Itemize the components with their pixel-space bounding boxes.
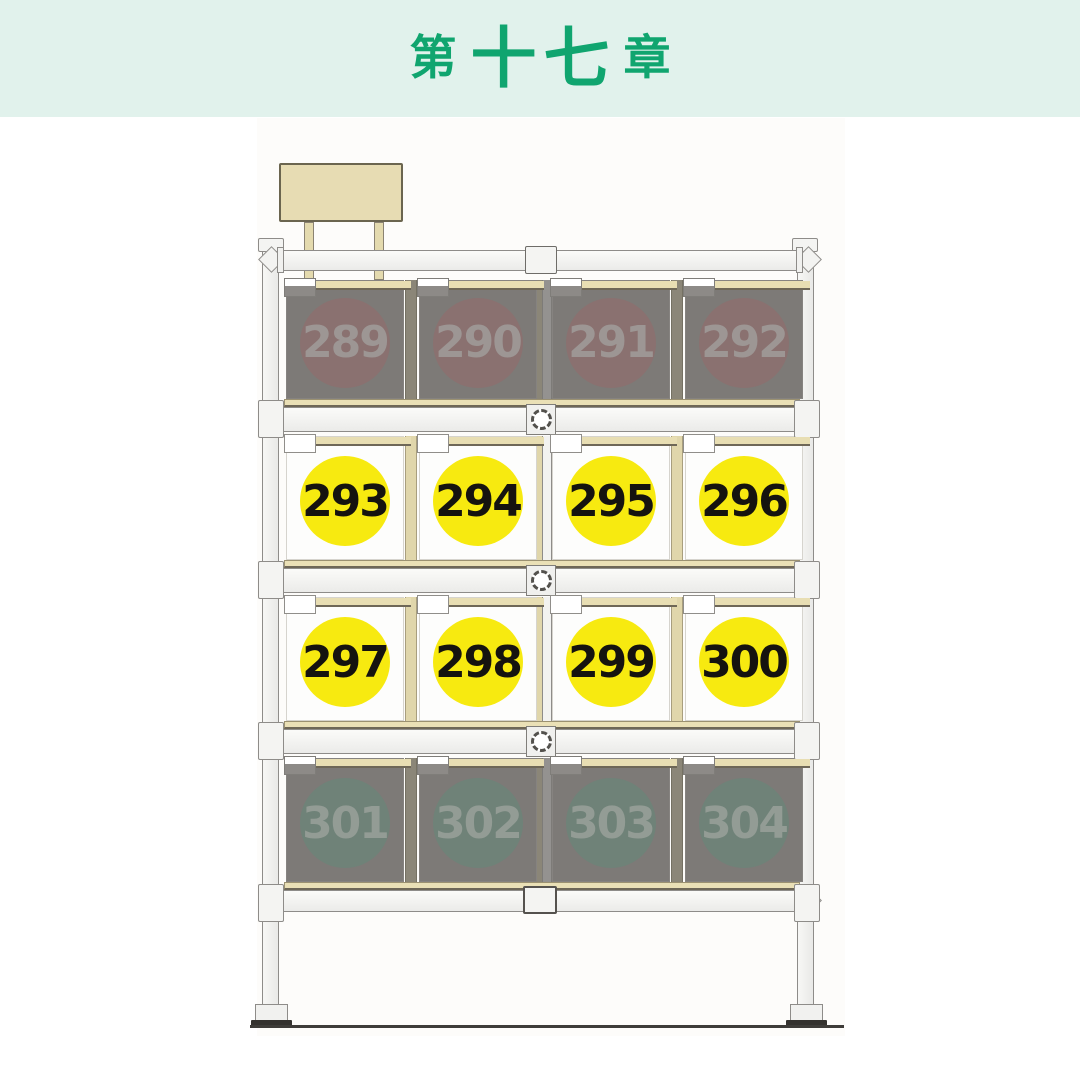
box-tab [683,595,715,614]
storage-box: 294 [419,436,537,560]
storage-box: 299 [552,597,670,721]
pipe-joint-icon [526,565,556,596]
center-upright [542,436,552,560]
box-rim [708,598,810,607]
pipe-joint-icon [526,404,556,435]
box-rim [309,759,411,768]
post-joint [794,561,820,599]
box-tab [284,278,316,297]
floor-line [250,1025,844,1028]
storage-box: 291 [552,280,670,399]
box-number-badge[interactable]: 296 [699,456,789,546]
beam-center-joint [523,886,557,914]
box-number-badge: 301 [300,778,390,868]
box-rim [708,759,810,768]
box-number-badge: 290 [433,298,523,388]
box-number-badge: 302 [433,778,523,868]
box-number-badge[interactable]: 293 [300,456,390,546]
storage-box: 290 [419,280,537,399]
box-number-badge[interactable]: 298 [433,617,523,707]
box-number-badge[interactable]: 300 [699,617,789,707]
box-number-badge[interactable]: 299 [566,617,656,707]
storage-box: 296 [685,436,803,560]
box-tab [683,278,715,297]
box-tab [284,756,316,775]
box-tab [417,278,449,297]
row-divider [405,758,417,882]
box-tab [550,756,582,775]
storage-box: 304 [685,758,803,882]
box-tab [683,756,715,775]
storage-box: 289 [286,280,404,399]
beam-center-joint [525,246,557,274]
post-joint [258,722,284,760]
post-joint [258,561,284,599]
box-tab [683,434,715,453]
box-rim [442,598,544,607]
storage-box: 298 [419,597,537,721]
post-joint [794,400,820,438]
storage-box: 303 [552,758,670,882]
box-rim [575,598,677,607]
box-number-badge[interactable]: 294 [433,456,523,546]
center-upright [542,280,552,399]
row-divider [671,436,683,560]
row-divider [671,597,683,721]
storage-box: 302 [419,758,537,882]
box-rim [442,759,544,768]
box-tab [550,434,582,453]
row-divider [405,280,417,399]
row-divider [405,597,417,721]
beam-end-cap [796,247,803,273]
header-band: 第 十七 章 [0,0,1080,117]
box-rim [309,281,411,290]
box-rim [442,281,544,290]
box-number-badge: 289 [300,298,390,388]
storage-box: 301 [286,758,404,882]
sign-board [279,163,403,222]
box-rim [575,281,677,290]
page: 第 十七 章 289 290 [0,0,1080,1080]
post-joint [794,884,820,922]
chapter-prefix: 第 [410,35,457,82]
box-rim [708,281,810,290]
storage-row-4: 301 302 303 304 [284,758,800,882]
beam-end-cap [277,247,284,273]
storage-box: 295 [552,436,670,560]
box-tab [284,595,316,614]
box-tab [417,756,449,775]
box-tab [417,434,449,453]
box-number-badge: 304 [699,778,789,868]
box-rim [442,437,544,446]
box-tab [284,434,316,453]
storage-box: 293 [286,436,404,560]
center-upright [542,597,552,721]
row-divider [405,436,417,560]
box-rim [708,437,810,446]
storage-row-2: 293 294 295 296 [284,436,800,560]
box-number-badge: 292 [699,298,789,388]
box-tab [550,595,582,614]
box-number-badge[interactable]: 297 [300,617,390,707]
chapter-number: 十七 [471,26,617,92]
chapter-suffix: 章 [624,35,671,82]
storage-box: 300 [685,597,803,721]
post-joint [258,400,284,438]
box-number-badge: 291 [566,298,656,388]
box-number-badge[interactable]: 295 [566,456,656,546]
pipe-joint-icon [526,726,556,757]
row-divider [671,758,683,882]
box-rim [309,598,411,607]
post-joint [258,884,284,922]
box-number-badge: 303 [566,778,656,868]
box-tab [550,278,582,297]
storage-row-3: 297 298 299 300 [284,597,800,721]
storage-box: 292 [685,280,803,399]
row-divider [671,280,683,399]
box-rim [309,437,411,446]
center-upright [542,758,552,882]
box-tab [417,595,449,614]
box-rim [575,437,677,446]
post-joint [794,722,820,760]
storage-row-1: 289 290 291 292 [284,280,800,399]
storage-box: 297 [286,597,404,721]
box-rim [575,759,677,768]
